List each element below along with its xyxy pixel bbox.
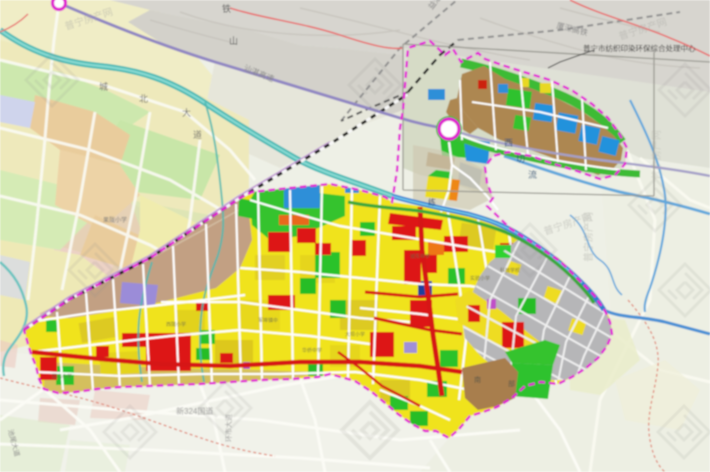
svg-text:北: 北	[139, 94, 148, 104]
svg-text:华侨中学: 华侨中学	[302, 347, 322, 354]
svg-text:普宁市纺织印染环保综合处理中心: 普宁市纺织印染环保综合处理中心	[583, 43, 696, 53]
svg-text:流: 流	[528, 169, 537, 180]
svg-text:大: 大	[182, 107, 191, 118]
svg-text:普宁房产网: 普宁房产网	[650, 130, 663, 180]
svg-text:实验小学: 实验小学	[470, 275, 490, 282]
svg-text:城: 城	[99, 82, 108, 92]
svg-text:练: 练	[428, 197, 436, 207]
svg-text:城东中学: 城东中学	[410, 253, 430, 260]
svg-text:普宁房产网: 普宁房产网	[582, 212, 595, 262]
svg-text:圆山小学: 圆山小学	[52, 373, 72, 380]
svg-text:铁: 铁	[222, 3, 231, 14]
svg-text:道: 道	[193, 129, 202, 140]
svg-text:新324国道: 新324国道	[176, 406, 213, 416]
svg-text:部: 部	[508, 379, 515, 388]
svg-text:山: 山	[229, 36, 238, 46]
svg-text:军埠镇中: 军埠镇中	[258, 317, 278, 324]
svg-text:南: 南	[474, 375, 481, 384]
svg-text:科技学校: 科技学校	[500, 267, 520, 274]
svg-text:果陇小学: 果陇小学	[103, 216, 127, 224]
svg-text:大坝小学: 大坝小学	[345, 331, 365, 338]
svg-text:西: 西	[504, 138, 513, 148]
svg-text:西陇小学: 西陇小学	[166, 321, 186, 328]
svg-text:切: 切	[516, 154, 525, 164]
